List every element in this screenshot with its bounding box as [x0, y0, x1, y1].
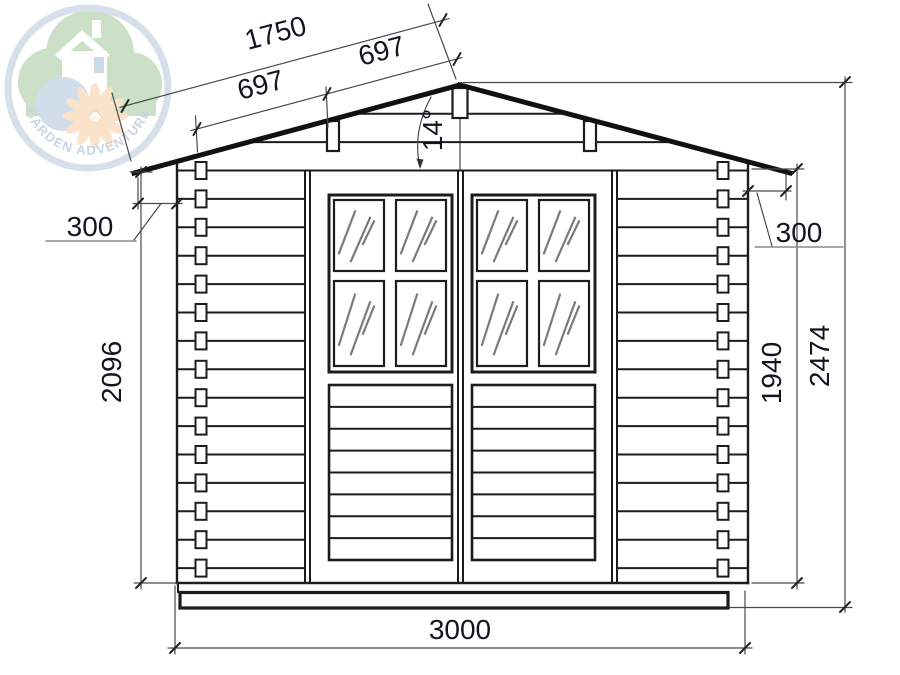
log-end-square: [718, 332, 729, 349]
leader-right-300: [757, 193, 772, 246]
dim-left-wall-height-label: 2096: [96, 341, 127, 403]
log-end-square: [718, 219, 729, 236]
ext-roof-peak: [428, 4, 456, 79]
glass-hatch-line: [568, 307, 579, 334]
dim-total-width-label: 3000: [429, 614, 491, 645]
window-pane: [396, 200, 446, 271]
window-pane: [477, 281, 527, 366]
log-end-square: [718, 304, 729, 321]
log-end-square: [196, 560, 207, 577]
shed-front-elevation-drawing: GARDEN ADVENTURE: [0, 0, 900, 675]
log-end-square: [718, 503, 729, 520]
purlin-center: [453, 88, 468, 118]
glass-hatch-line: [494, 302, 513, 354]
dim-roof-angle-label: 14°: [417, 109, 448, 151]
log-end-square: [718, 162, 729, 179]
glass-hatch-line: [494, 218, 513, 261]
roof-left-slope: [134, 85, 460, 173]
log-end-square: [718, 389, 729, 406]
logo-house-window: [94, 57, 104, 73]
glass-hatch-line: [351, 302, 370, 354]
purlin-right: [584, 121, 596, 151]
building-elevation: [134, 85, 790, 608]
log-end-square: [718, 361, 729, 378]
log-end-square: [718, 560, 729, 577]
log-end-square: [718, 531, 729, 548]
log-end-square: [718, 190, 729, 207]
window-pane: [539, 200, 589, 271]
dim-total-height-label: 2474: [804, 325, 835, 387]
log-end-square: [196, 162, 207, 179]
window-pane: [539, 281, 589, 366]
log-end-square: [196, 361, 207, 378]
log-end-square: [196, 247, 207, 264]
dimension-lines: [112, 4, 852, 654]
glass-hatch-line: [413, 218, 432, 261]
window-panes: [334, 200, 589, 366]
logo-flower-center: [91, 112, 100, 121]
glass-hatch-line: [425, 307, 436, 334]
dim-roof-slope-right-label: 697: [355, 30, 408, 72]
purlin-left: [327, 121, 339, 151]
glass-hatch-line: [544, 295, 560, 345]
log-end-square: [196, 332, 207, 349]
left-door-window-frame: [329, 195, 452, 372]
drawing-svg: GARDEN ADVENTURE: [0, 0, 900, 675]
log-end-square: [718, 474, 729, 491]
window-pane: [396, 281, 446, 366]
window-pane: [477, 200, 527, 271]
log-end-square: [718, 247, 729, 264]
glass-hatch-line: [544, 211, 560, 253]
log-end-square: [718, 276, 729, 293]
log-end-square: [196, 304, 207, 321]
window-pane: [334, 281, 384, 366]
floor-base: [180, 593, 728, 609]
dim-roof-slope-left-label: 697: [234, 64, 287, 106]
dim-right-wall-height-label: 1940: [756, 342, 787, 404]
log-end-square: [196, 389, 207, 406]
log-end-square: [196, 190, 207, 207]
ext-697-left: [196, 116, 198, 152]
dim-left-overhang-label: 300: [67, 211, 114, 242]
glass-hatch-line: [556, 302, 575, 354]
dim-right-overhang-label: 300: [776, 217, 823, 248]
glass-hatch-line: [506, 307, 517, 334]
log-end-square: [718, 446, 729, 463]
glass-hatch-line: [401, 211, 417, 253]
glass-hatch-line: [482, 295, 498, 345]
log-end-square: [196, 531, 207, 548]
log-end-square: [196, 446, 207, 463]
garden-adventure-logo: GARDEN ADVENTURE: [8, 8, 168, 168]
glass-hatch-line: [363, 307, 374, 334]
double-door: [305, 171, 617, 584]
glass-hatch-line: [339, 295, 355, 345]
dim-roof-slope-total-label: 1750: [241, 10, 309, 56]
angle-arrowhead: [417, 159, 424, 170]
log-end-square: [196, 276, 207, 293]
log-end-square: [718, 418, 729, 435]
right-door-window-frame: [472, 195, 595, 372]
log-end-square: [196, 418, 207, 435]
glass-hatch-line: [413, 302, 432, 354]
glass-hatch-line: [401, 295, 417, 345]
glass-hatch-line: [556, 218, 575, 261]
window-pane: [334, 200, 384, 271]
glass-hatch-line: [482, 211, 498, 253]
glass-hatch-line: [339, 211, 355, 253]
glass-hatch-line: [351, 218, 370, 261]
log-end-square: [196, 219, 207, 236]
log-end-square: [196, 474, 207, 491]
log-end-square: [196, 503, 207, 520]
roof-right-slope: [460, 85, 790, 173]
